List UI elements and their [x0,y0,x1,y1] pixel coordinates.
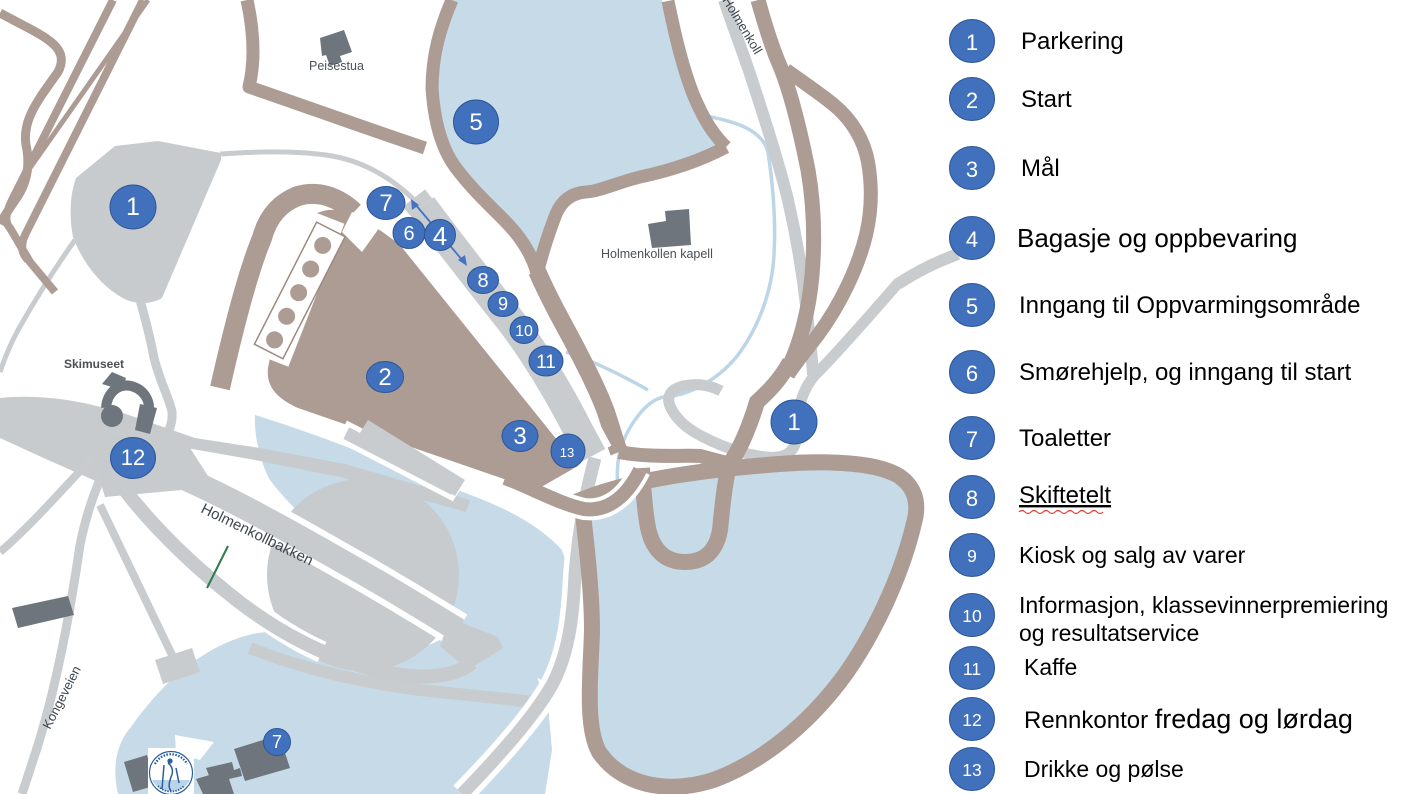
svg-text:1: 1 [126,193,140,221]
svg-text:Kaffe: Kaffe [1024,654,1077,680]
svg-text:13: 13 [560,445,574,460]
svg-text:7: 7 [966,427,978,452]
svg-text:5: 5 [469,109,482,136]
svg-text:13: 13 [962,760,981,780]
svg-text:7: 7 [379,190,392,217]
svg-text:8: 8 [966,486,978,511]
svg-text:Mål: Mål [1021,155,1060,182]
svg-text:Holmenkollen kapell: Holmenkollen kapell [601,247,713,261]
svg-text:Drikke og pølse: Drikke og pølse [1024,756,1184,782]
svg-text:7: 7 [272,732,282,752]
svg-text:10: 10 [515,323,533,340]
svg-text:11: 11 [536,352,556,373]
svg-text:6: 6 [403,223,414,245]
svg-text:Toaletter: Toaletter [1019,425,1111,452]
svg-text:Skiftetelt: Skiftetelt [1019,482,1111,509]
svg-text:12: 12 [121,445,145,470]
svg-text:5: 5 [966,294,978,319]
svg-text:Informasjon, klassevinnerpremi: Informasjon, klassevinnerpremiering [1019,592,1388,618]
svg-text:4: 4 [966,227,978,252]
svg-text:og resultatservice: og resultatservice [1019,620,1199,646]
svg-text:Rennkontor fredag og lørdag: Rennkontor fredag og lørdag [1024,704,1353,734]
svg-text:1: 1 [966,30,978,55]
svg-text:Skimuseet: Skimuseet [64,357,124,371]
svg-text:9: 9 [967,546,977,566]
svg-text:2: 2 [966,88,978,113]
svg-text:2: 2 [378,364,391,391]
svg-text:9: 9 [498,294,508,314]
svg-text:1: 1 [787,409,800,436]
svg-text:Peisestua: Peisestua [309,59,364,73]
svg-text:8: 8 [477,270,488,292]
svg-text:Start: Start [1021,86,1072,113]
svg-text:3: 3 [966,157,978,182]
svg-text:Kiosk og salg av varer: Kiosk og salg av varer [1019,542,1246,568]
svg-text:6: 6 [966,361,978,386]
svg-text:Smørehjelp, og inngang til sta: Smørehjelp, og inngang til start [1019,359,1352,386]
svg-text:11: 11 [963,659,981,679]
svg-text:Inngang til Oppvarmingsområde: Inngang til Oppvarmingsområde [1019,292,1361,319]
svg-text:Bagasje og oppbevaring: Bagasje og oppbevaring [1017,223,1297,253]
svg-text:4: 4 [433,221,447,251]
svg-text:Parkering: Parkering [1021,28,1124,55]
svg-text:10: 10 [962,606,982,626]
svg-text:3: 3 [513,423,526,450]
svg-text:12: 12 [962,710,981,730]
